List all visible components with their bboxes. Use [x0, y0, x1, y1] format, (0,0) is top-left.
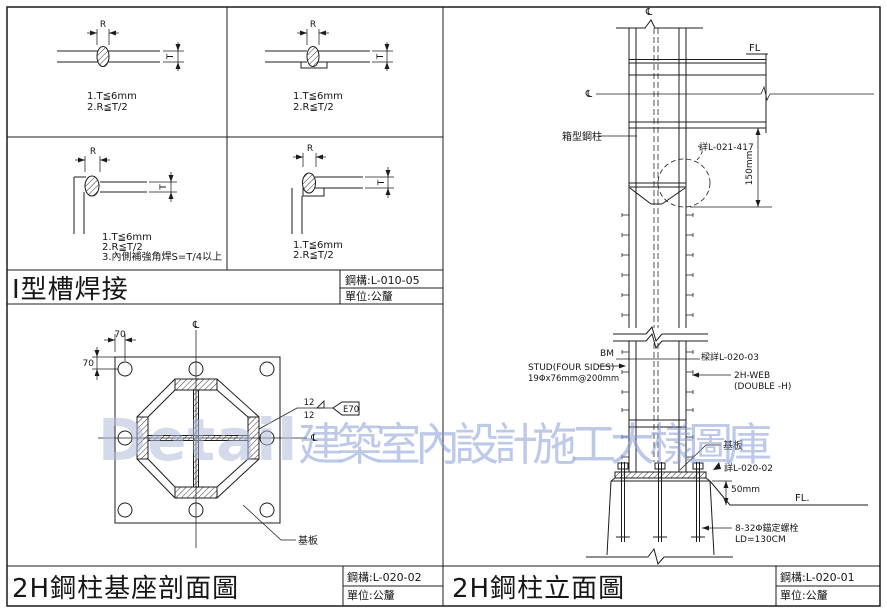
dim-t-label: T: [166, 53, 176, 60]
drawing-number: 鋼構:L-010-05: [345, 273, 420, 287]
centerline-icon: ℄: [310, 433, 318, 444]
section-title-base: 2H鋼柱基座剖面圖: [12, 574, 239, 604]
weld-note: 2.R≦T/2: [293, 102, 334, 113]
dim-t-label: T: [376, 53, 386, 60]
anchor-bolt-note: 8-32Φ錨定螺栓: [735, 522, 799, 534]
dim-t-label: T: [377, 179, 387, 186]
centerline-icon: ℄: [645, 7, 653, 18]
stud-note: STUD(FOUR SIDES): [528, 363, 614, 373]
leader-arrow-icon: [713, 462, 721, 470]
base-reference: 詳L-020-02: [724, 462, 773, 474]
web-note: 2H-WEB: [734, 371, 770, 381]
weld-size-top: 12: [304, 398, 315, 408]
weld-note: 2.R≦T/2: [293, 250, 334, 261]
weld-callout: 12 12 E70: [259, 398, 359, 429]
weld-note: 1.T≦6mm: [87, 91, 137, 102]
cruciform-column-section: [137, 379, 259, 498]
weld-note: 1.T≦6mm: [293, 91, 343, 102]
weld-detail-corner-joint: R T 1.T≦6mm 2.R≦T/2 3.內側補強角焊S=T/4以上: [74, 147, 222, 263]
web-note: (DOUBLE -H): [734, 382, 791, 392]
bm-label: BM: [600, 349, 614, 359]
weld-bead-icon: [85, 176, 99, 196]
unit-label: 單位:公釐: [347, 588, 395, 602]
weld-bead-icon: [307, 47, 319, 67]
anchor-bolt-note: LD=130CM: [735, 535, 786, 545]
fillet-weld-icon: [317, 401, 324, 408]
dim-r-label: R: [100, 20, 106, 30]
cad-linework: R T 1.T≦6mm 2.R≦T/2 R T 1.T≦6mm 2.R≦T/2 …: [0, 0, 887, 611]
weld-note: 3.內側補強角焊S=T/4以上: [102, 250, 222, 263]
weld-note: 2.R≦T/2: [87, 102, 128, 113]
weld-detail-butt-joint-backing: R T 1.T≦6mm 2.R≦T/2: [265, 20, 393, 113]
weld-bead-icon: [303, 173, 316, 193]
weld-size-bottom: 12: [304, 411, 315, 421]
drawing-number: 鋼構:L-020-02: [347, 570, 422, 584]
edge-distance-dim: 70: [83, 359, 95, 369]
dim-r-label: R: [310, 20, 316, 30]
stud-note: 19Φx76mm@200mm: [528, 374, 619, 384]
weld-bead-icon: [97, 47, 109, 67]
centerline-icon: ℄: [585, 89, 593, 100]
section-title-weld: I型槽焊接: [12, 275, 129, 305]
elevation-drawing: ℄ FL ℄ 150mm 箱型鋼柱 詳L-021-417 BM 樑詳L-020-…: [528, 7, 874, 564]
drawing-number: 鋼構:L-020-01: [780, 570, 855, 584]
unit-label: 單位:公釐: [345, 289, 393, 303]
base-plate-label: 基板: [723, 439, 743, 452]
drawing-sheet: R T 1.T≦6mm 2.R≦T/2 R T 1.T≦6mm 2.R≦T/2 …: [0, 0, 887, 611]
centerline-icon: ℄: [192, 320, 200, 331]
grout-dim: 50mm: [731, 485, 760, 495]
sheet-borders: [7, 7, 880, 606]
base-plate-label: 基板: [298, 534, 318, 547]
section-title-elevation: 2H鋼柱立面圖: [452, 574, 625, 604]
base-plate: [615, 472, 706, 478]
unit-label: 單位:公釐: [780, 588, 828, 602]
dim-r-label: R: [307, 144, 313, 154]
floor-level-label: FL: [749, 43, 761, 54]
box-column-label: 箱型鋼柱: [562, 130, 602, 143]
beam-reference: 樑詳L-020-03: [701, 351, 759, 363]
weld-detail-corner-joint-backing: R T 1.T≦6mm 2.R≦T/2: [292, 144, 394, 261]
dim-t-label: T: [159, 184, 169, 191]
detail-reference: 詳L-021-417: [699, 141, 754, 153]
edge-distance-dim: 70: [114, 330, 126, 340]
floor-level-label: FL.: [795, 493, 810, 504]
weld-detail-butt-joint: R T 1.T≦6mm 2.R≦T/2: [57, 20, 184, 113]
splice-height-dim: 150mm: [745, 151, 755, 186]
dim-r-label: R: [90, 147, 96, 157]
base-plan-drawing: 70 70 ℄ ℄ 12 12 E70 基板: [83, 320, 360, 548]
electrode-label: E70: [343, 405, 359, 415]
